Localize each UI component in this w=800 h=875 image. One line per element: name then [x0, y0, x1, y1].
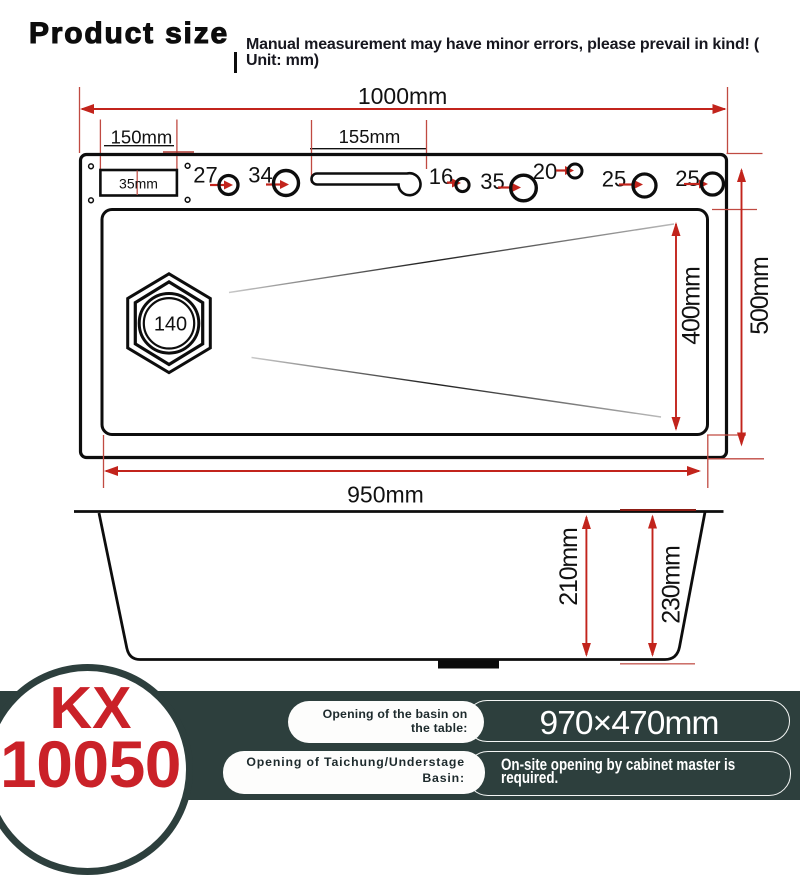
svg-text:35mm: 35mm	[119, 176, 158, 192]
svg-text:400mm: 400mm	[678, 267, 706, 345]
svg-text:230mm: 230mm	[658, 546, 686, 624]
svg-text:140: 140	[154, 314, 187, 336]
svg-text:20: 20	[533, 159, 557, 184]
svg-text:150mm: 150mm	[111, 127, 173, 148]
svg-text:210mm: 210mm	[555, 528, 583, 606]
svg-text:25: 25	[602, 167, 626, 192]
svg-text:35: 35	[480, 169, 504, 194]
svg-text:25: 25	[675, 166, 699, 191]
svg-text:155mm: 155mm	[339, 126, 401, 147]
svg-text:500mm: 500mm	[746, 257, 774, 335]
svg-text:27: 27	[193, 163, 217, 188]
svg-text:16: 16	[429, 164, 453, 189]
svg-text:1000mm: 1000mm	[358, 83, 447, 109]
svg-text:950mm: 950mm	[347, 482, 424, 508]
